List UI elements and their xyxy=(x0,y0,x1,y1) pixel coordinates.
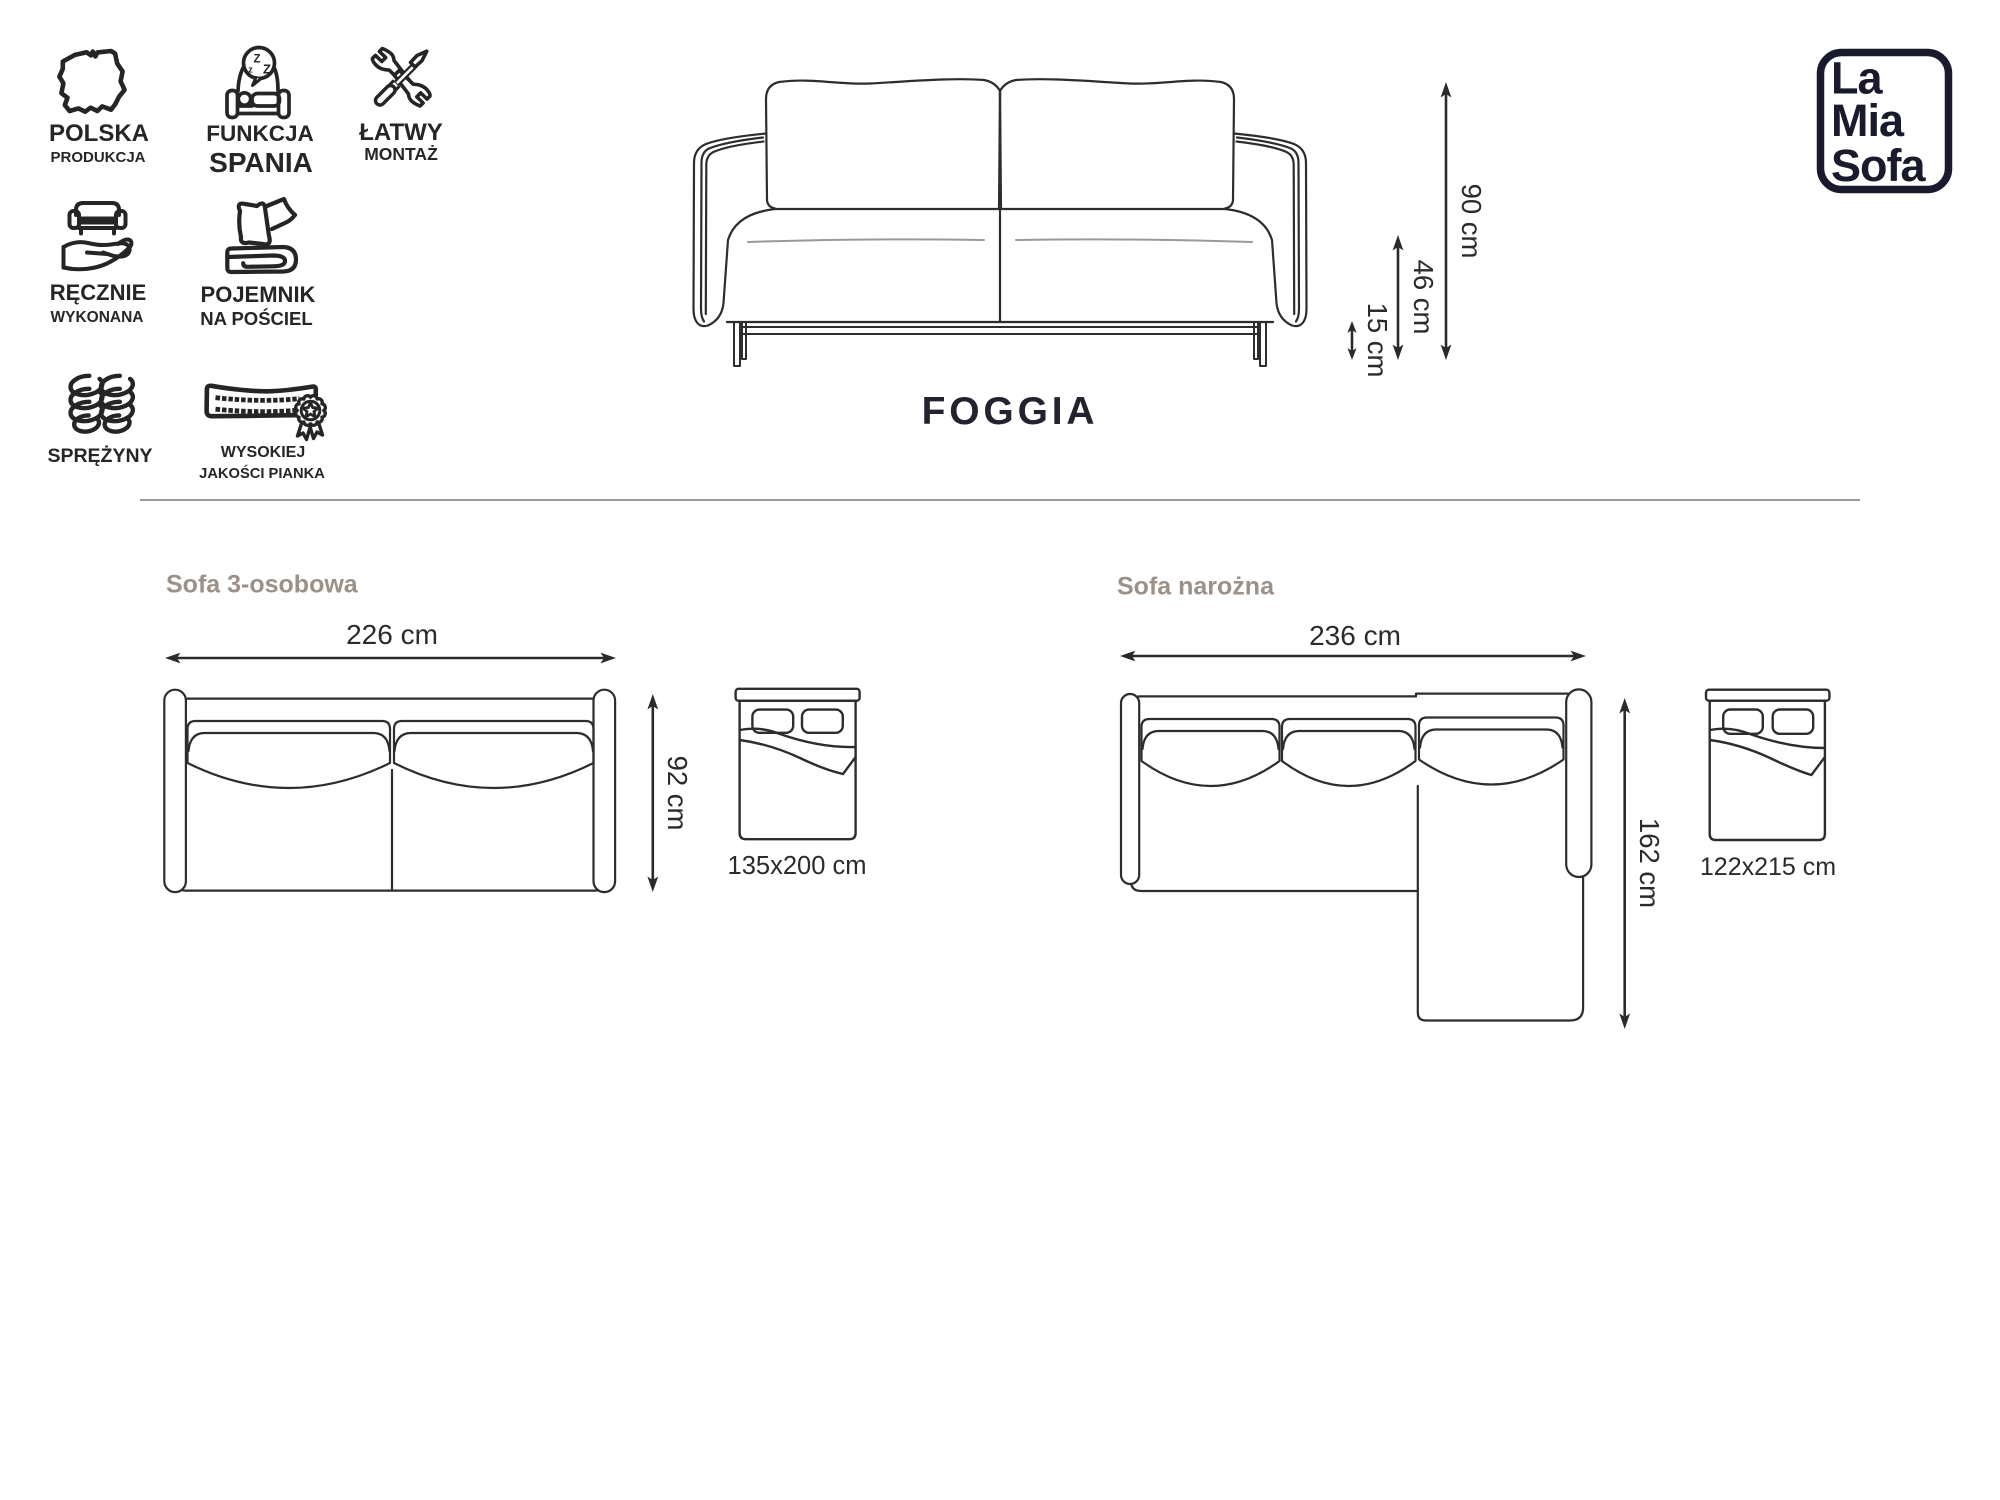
svg-text:FUNKCJA: FUNKCJA xyxy=(206,121,314,146)
svg-text:FOGGIA: FOGGIA xyxy=(922,390,1099,433)
svg-text:Sofa: Sofa xyxy=(1831,140,1926,191)
svg-text:135x200 cm: 135x200 cm xyxy=(728,852,867,880)
svg-text:90 cm: 90 cm xyxy=(1456,184,1487,259)
svg-text:Z: Z xyxy=(253,54,260,66)
svg-text:162 cm: 162 cm xyxy=(1634,818,1665,908)
svg-text:SPRĘŻYNY: SPRĘŻYNY xyxy=(47,444,152,467)
svg-text:POJEMNIK: POJEMNIK xyxy=(201,282,316,307)
svg-text:POLSKA: POLSKA xyxy=(49,120,149,147)
svg-text:236 cm: 236 cm xyxy=(1309,620,1401,651)
svg-text:WYKONANA: WYKONANA xyxy=(51,309,144,326)
svg-text:15 cm: 15 cm xyxy=(1362,303,1393,378)
svg-text:ŁATWY: ŁATWY xyxy=(359,119,443,146)
svg-text:Z: Z xyxy=(263,62,271,77)
svg-text:122x215 cm: 122x215 cm xyxy=(1700,853,1836,881)
svg-text:PRODUKCJA: PRODUKCJA xyxy=(50,149,145,166)
svg-text:MONTAŻ: MONTAŻ xyxy=(364,144,438,164)
svg-text:Mia: Mia xyxy=(1831,95,1905,146)
svg-text:JAKOŚCI PIANKA: JAKOŚCI PIANKA xyxy=(199,464,325,482)
svg-text:SPANIA: SPANIA xyxy=(209,147,313,178)
svg-text:226 cm: 226 cm xyxy=(346,619,438,650)
svg-text:92 cm: 92 cm xyxy=(662,756,693,831)
svg-text:NA POŚCIEL: NA POŚCIEL xyxy=(200,308,312,329)
svg-text:Sofa 3-osobowa: Sofa 3-osobowa xyxy=(166,571,359,599)
svg-text:RĘCZNIE: RĘCZNIE xyxy=(50,280,147,305)
svg-text:WYSOKIEJ: WYSOKIEJ xyxy=(221,444,305,461)
svg-text:46 cm: 46 cm xyxy=(1408,260,1439,335)
svg-text:z: z xyxy=(248,65,253,75)
svg-text:Sofa narożna: Sofa narożna xyxy=(1117,573,1275,601)
